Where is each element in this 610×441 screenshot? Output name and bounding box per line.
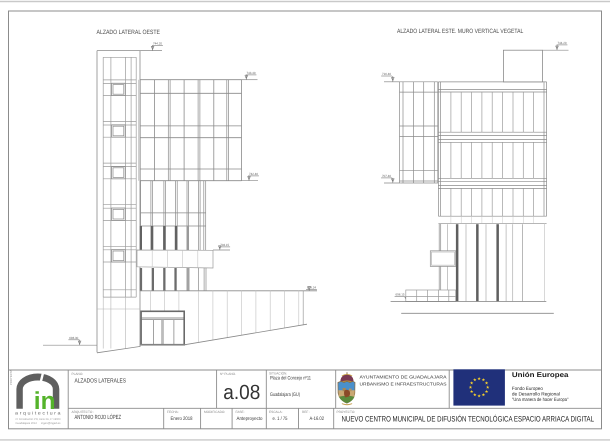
svg-text:NUEVO CENTRO MUNICIPAL DE DIFU: NUEVO CENTRO MUNICIPAL DE DIFUSIÓN TECNO… <box>342 414 595 423</box>
svg-text:ingen@inged.es: ingen@inged.es <box>41 422 61 425</box>
svg-text:Nº PLANO.: Nº PLANO. <box>220 372 236 376</box>
svg-text:ALZADO LATERAL ESTE. MURO VERT: ALZADO LATERAL ESTE. MURO VERTICAL VEGET… <box>397 28 524 35</box>
svg-text:703.15: 703.15 <box>220 243 229 247</box>
svg-text:URBANISMO E INFRAESTRUCTURAS: URBANISMO E INFRAESTRUCTURAS <box>360 382 447 387</box>
svg-text:Anteproyecto: Anteproyecto <box>237 416 263 422</box>
svg-text:Fondo Europeo: Fondo Europeo <box>512 386 543 392</box>
svg-text:ESCALA:: ESCALA: <box>269 410 283 414</box>
svg-text:"Una manera de hacer Europa": "Una manera de hacer Europa" <box>512 397 569 403</box>
svg-text:698.15: 698.15 <box>396 293 405 297</box>
svg-text:Guadalajara (GU): Guadalajara (GU) <box>270 392 300 398</box>
svg-text:C/ Constitución nº8, trans 3A,: C/ Constitución nº8, trans 3A, 1º 19003 <box>16 418 61 421</box>
svg-text:MODIFICADO:: MODIFICADO: <box>204 410 225 414</box>
svg-text:ALZADO LATERAL OESTE: ALZADO LATERAL OESTE <box>97 29 161 36</box>
svg-text:742.46: 742.46 <box>249 172 258 176</box>
svg-text:FECHA:: FECHA: <box>167 410 179 414</box>
svg-text:743.40: 743.40 <box>247 71 256 75</box>
svg-text:REF :: REF : <box>302 410 310 414</box>
svg-text:716.46: 716.46 <box>382 72 391 76</box>
svg-text:ANTONIO ROJO LÓPEZ: ANTONIO ROJO LÓPEZ <box>75 413 122 421</box>
svg-text:a r q u i t e c t u r a: a r q u i t e c t u r a <box>15 410 61 415</box>
svg-text:A-16.02: A-16.02 <box>310 416 325 422</box>
svg-text:698.30: 698.30 <box>69 336 78 340</box>
svg-text:e. 1 / 75: e. 1 / 75 <box>273 416 288 422</box>
svg-text:Guadalajara 2012: Guadalajara 2012 <box>16 422 38 425</box>
svg-text:744.20: 744.20 <box>153 42 162 46</box>
svg-text:ARQUITECTO :: ARQUITECTO : <box>72 410 95 414</box>
svg-text:ALZADOS LATERALES: ALZADOS LATERALES <box>75 377 127 384</box>
svg-text:PROYECTA: PROYECTA <box>9 370 13 385</box>
svg-text:Enero 2018: Enero 2018 <box>171 416 193 422</box>
svg-text:PLANO:: PLANO: <box>72 372 84 376</box>
svg-text:744.20: 744.20 <box>558 41 567 45</box>
svg-text:a.08: a.08 <box>223 381 260 404</box>
svg-text:Unión Europea: Unión Europea <box>512 371 569 379</box>
svg-text:Plaza del Concejo nº11: Plaza del Concejo nº11 <box>270 376 311 382</box>
svg-text:AYUNTAMIENTO DE GUADALAJARA: AYUNTAMIENTO DE GUADALAJARA <box>360 375 447 380</box>
svg-text:707.46: 707.46 <box>382 174 391 178</box>
svg-text:FASE:: FASE: <box>236 410 245 414</box>
svg-text:de Desarrollo Regional: de Desarrollo Regional <box>512 392 560 398</box>
